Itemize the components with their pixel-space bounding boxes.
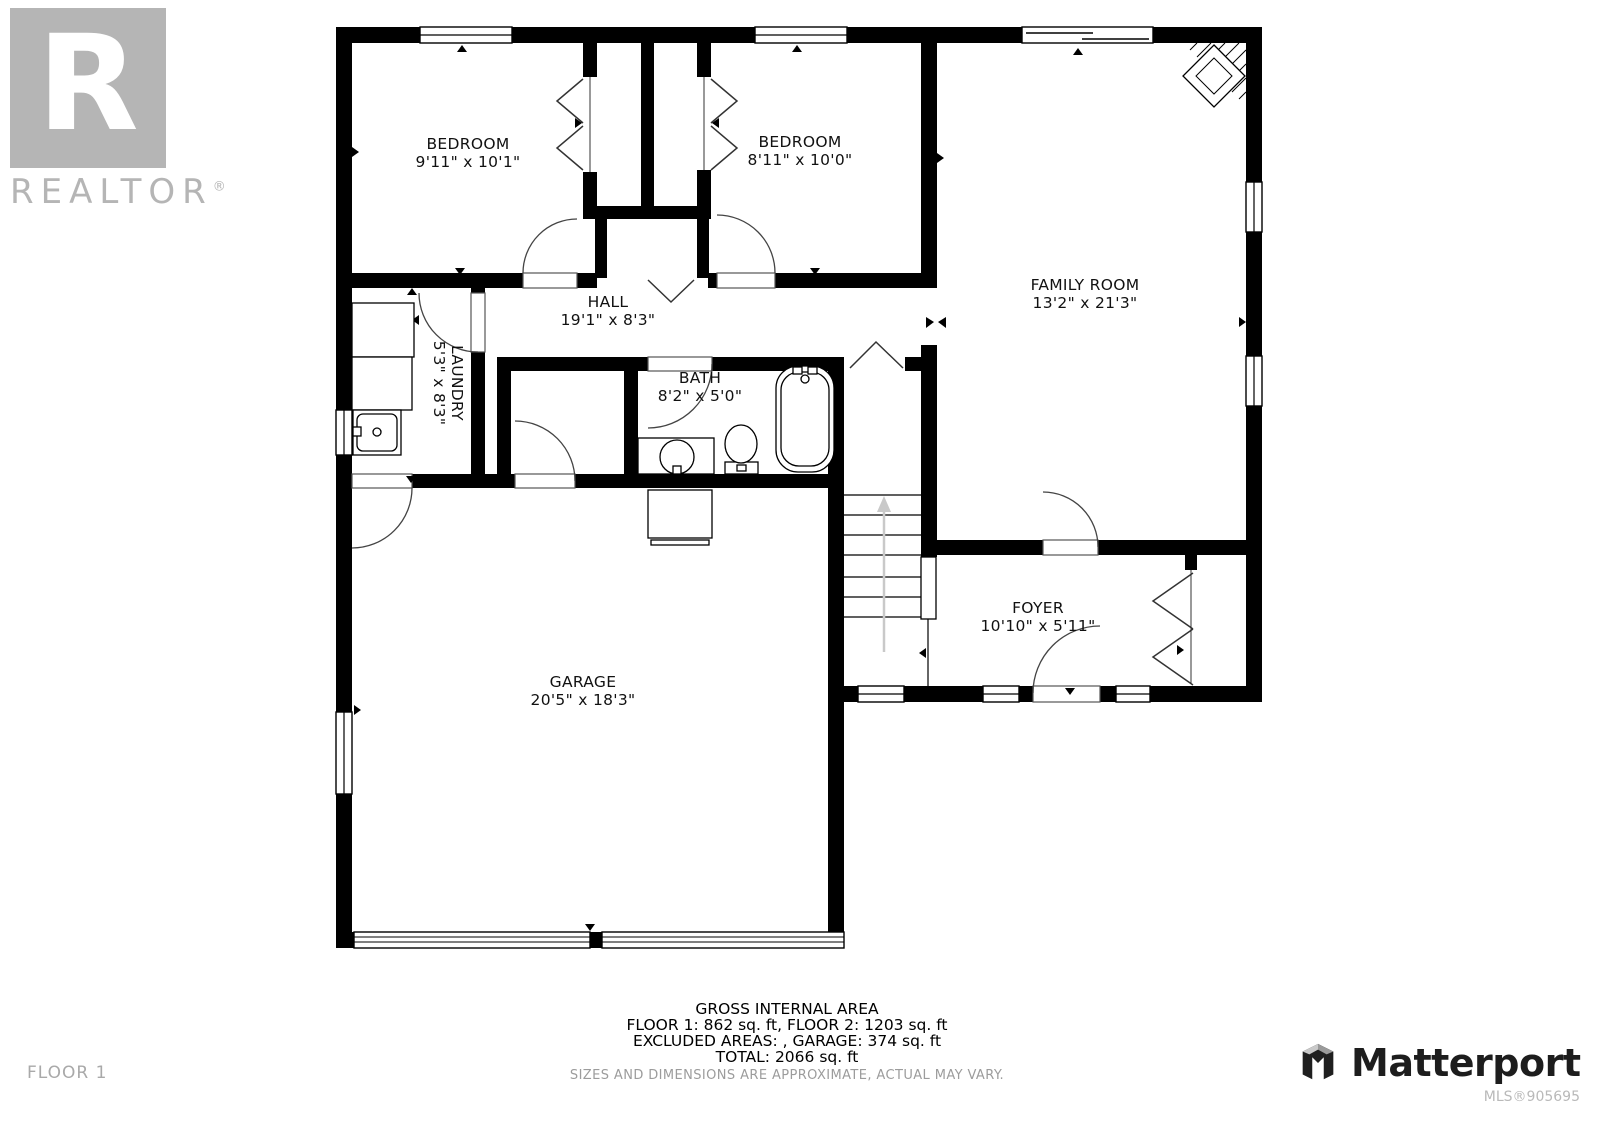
room-dims-bath: 8'2" x 5'0"	[658, 387, 743, 405]
vanity-sink-icon	[638, 438, 714, 474]
bath-fixtures	[638, 366, 834, 474]
room-dims-bedroom-1: 9'11" x 10'1"	[416, 153, 521, 171]
fireplace-icon	[1183, 43, 1246, 107]
room-label-laundry: LAUNDRY	[448, 345, 466, 421]
laundry-fixtures	[352, 303, 414, 455]
matterport-icon	[1295, 1040, 1341, 1086]
bathtub-icon	[776, 366, 834, 472]
room-label-bedroom-2: BEDROOM	[758, 133, 841, 151]
stair-railing	[921, 557, 936, 619]
room-dims-garage: 20'5" x 18'3"	[531, 691, 636, 709]
floorplan-drawing: BEDROOM 9'11" x 10'1" BEDROOM 8'11" x 10…	[0, 0, 1600, 1130]
area-line-total: TOTAL: 2066 sq. ft	[487, 1049, 1087, 1065]
sliding-door	[1022, 27, 1153, 43]
area-disclaimer: SIZES AND DIMENSIONS ARE APPROXIMATE, AC…	[487, 1068, 1087, 1083]
room-label-garage: GARAGE	[550, 673, 617, 691]
area-title: GROSS INTERNAL AREA	[487, 1001, 1087, 1017]
dryer-icon	[352, 357, 412, 410]
room-label-bedroom-1: BEDROOM	[426, 135, 509, 153]
room-dims-foyer: 10'10" x 5'11"	[980, 617, 1095, 635]
garage-door	[354, 932, 844, 948]
toilet-icon	[725, 425, 758, 474]
room-label-foyer: FOYER	[1012, 599, 1064, 617]
matterport-logo: Matterport	[1295, 1040, 1581, 1086]
room-dims-bedroom-2: 8'11" x 10'0"	[748, 151, 853, 169]
room-label-family-room: FAMILY ROOM	[1031, 276, 1140, 294]
matterport-wordmark: Matterport	[1351, 1041, 1581, 1085]
floor-label: FLOOR 1	[27, 1063, 107, 1083]
floorplan-page: R REALTOR®	[0, 0, 1600, 1130]
room-label-bath: BATH	[679, 369, 721, 387]
furnace-icon	[648, 490, 712, 545]
area-line-floors: FLOOR 1: 862 sq. ft, FLOOR 2: 1203 sq. f…	[487, 1017, 1087, 1033]
room-dims-hall: 19'1" x 8'3"	[561, 311, 656, 329]
area-summary: GROSS INTERNAL AREA FLOOR 1: 862 sq. ft,…	[487, 1001, 1087, 1083]
room-dims-family-room: 13'2" x 21'3"	[1033, 294, 1138, 312]
room-label-hall: HALL	[588, 293, 629, 311]
room-dims-laundry: 5'3" x 8'3"	[430, 341, 448, 426]
utility-sink-icon	[353, 410, 401, 455]
mls-number: MLS®905695	[1390, 1089, 1580, 1105]
stairs-up-arrow-icon	[877, 496, 891, 652]
area-line-excluded: EXCLUDED AREAS: , GARAGE: 374 sq. ft	[487, 1033, 1087, 1049]
passage-chevrons	[648, 280, 903, 368]
washer-icon	[352, 303, 414, 357]
